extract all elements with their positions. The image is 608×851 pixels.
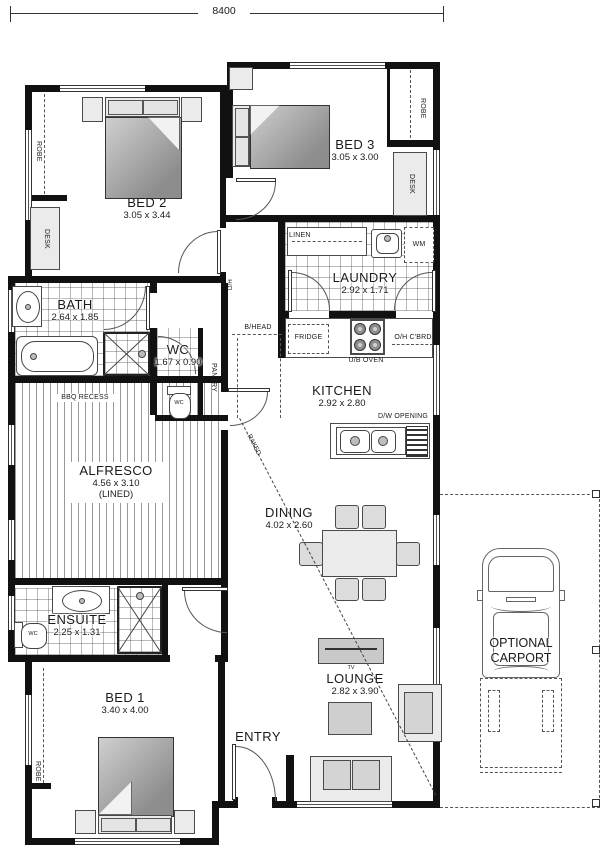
- alfresco-door-arc: [230, 392, 268, 426]
- carport-label-line1: OPTIONAL: [482, 636, 560, 651]
- carport-post-top: [592, 490, 600, 498]
- oh-cupboard-dash: [392, 344, 433, 345]
- ub-oven-label: U/B OVEN: [344, 357, 388, 365]
- hall-dash-left: [237, 338, 238, 418]
- wall-passage-left: [162, 585, 168, 655]
- linen-label: LINEN: [289, 232, 319, 240]
- sofa-cushion-right: [352, 760, 380, 790]
- carport-slab-edge: [480, 772, 562, 773]
- kitchen-name: KITCHEN: [297, 384, 387, 399]
- wall-wc-left: [150, 328, 157, 415]
- window-bed1-bottom: [75, 838, 180, 845]
- window-alfresco-left-a: [8, 425, 15, 465]
- carport-post-bottom: [592, 799, 600, 807]
- laundry-door2-leaf: [432, 270, 436, 312]
- linen-dash: [292, 241, 362, 242]
- bed1-dims: 3.40 x 4.00: [80, 706, 170, 717]
- bulkhead-label: B/HEAD: [234, 324, 282, 332]
- bed2-door-arc: [178, 231, 218, 273]
- window-bed2-top: [60, 85, 145, 92]
- bed2-dims: 3.05 x 3.44: [102, 211, 192, 222]
- wc-pan-label: WC: [169, 400, 189, 406]
- bulkhead-dash: [232, 334, 282, 335]
- sink-drain-left: [350, 436, 360, 446]
- laundry-dims: 2.92 x 1.71: [320, 286, 410, 297]
- ensuite-name: ENSUITE: [32, 613, 122, 628]
- bath-door-leaf: [146, 286, 150, 330]
- bed1-label: BED 1 3.40 x 4.00: [80, 691, 170, 717]
- dining-label: DINING 4.02 x 2.60: [244, 506, 334, 532]
- bed2-side-table-left: [82, 97, 103, 122]
- bed1-door-arc: [184, 591, 227, 633]
- kitchen-label: KITCHEN 2.92 x 2.80: [297, 384, 387, 410]
- wall-bath-top: [8, 276, 225, 283]
- wc-dims: 1.67 x 0.90: [133, 358, 223, 369]
- car-mirror-right: [559, 590, 565, 601]
- alfresco-name: ALFRESCO: [68, 464, 164, 479]
- bed1-side-table-left: [75, 810, 96, 834]
- bed1-side-table-right: [174, 810, 195, 834]
- bed2-desk-label: DESK: [39, 221, 50, 257]
- bed2-pillow-left: [108, 100, 143, 115]
- bed3-robe-label: ROBE: [415, 85, 426, 131]
- raked-label: RAKED: [243, 430, 263, 460]
- cooktop-burner-1: [354, 323, 366, 335]
- tv-screen-line: [325, 648, 377, 650]
- dining-chair-bottom-1: [335, 578, 359, 601]
- bed3-dims: 3.05 x 3.00: [310, 153, 400, 164]
- wall-laundry-bottom-a: [283, 311, 289, 318]
- window-alfresco-left-b: [8, 520, 15, 560]
- dining-chair-top-2: [362, 505, 386, 529]
- bbq-recess-label: BBQ RECESS: [55, 394, 115, 402]
- laundry-label: LAUNDRY 2.92 x 1.71: [320, 271, 410, 297]
- car-windshield: [491, 600, 551, 612]
- bed3-name: BED 3: [310, 138, 400, 153]
- bath-label: BATH 2.64 x 1.85: [30, 298, 120, 324]
- floor-plan: 8400: [0, 0, 608, 851]
- entry-door-arc: [236, 746, 276, 801]
- bed3-label: BED 3 3.05 x 3.00: [310, 138, 400, 164]
- wall-bed3-robe-side: [387, 66, 390, 140]
- kitchen-dims: 2.92 x 2.80: [297, 399, 387, 410]
- wall-bed1-right: [218, 662, 225, 801]
- lounge-name: LOUNGE: [310, 672, 400, 687]
- dining-chair-top-1: [335, 505, 359, 529]
- bed1-robe-rail: [43, 668, 44, 783]
- carport-label: OPTIONAL CARPORT: [482, 636, 560, 666]
- window-lounge-bottom: [297, 801, 392, 808]
- cooktop-burner-3: [354, 339, 366, 351]
- alfresco-note: (LINED): [68, 490, 164, 501]
- carport-post-mid: [592, 646, 600, 654]
- window-dining-right: [433, 515, 440, 565]
- wall-ensuite-bottom: [8, 655, 170, 662]
- carport-label-line2: CARPORT: [482, 651, 560, 666]
- cooktop-burner-2: [369, 323, 381, 335]
- dining-dims: 4.02 x 2.60: [244, 521, 334, 532]
- bed3-pillow-top: [235, 108, 249, 137]
- bed3-desk-label: DESK: [404, 166, 415, 202]
- ensuite-basin-drain: [79, 598, 85, 604]
- window-bed3-top: [290, 62, 385, 69]
- hall-dash-right: [280, 338, 281, 418]
- lounge-dims: 2.82 x 3.90: [310, 687, 400, 698]
- wall-laundry-bottom-b: [329, 311, 396, 318]
- carport-boundary-top: [440, 494, 600, 495]
- carport-footing-left: [488, 690, 500, 732]
- oh-cupboard-label: O/H C'BRD: [390, 334, 436, 342]
- dimension-tick-right: [443, 6, 444, 22]
- tv-unit: [318, 638, 384, 664]
- wall-alfresco-top: [8, 376, 228, 383]
- bed3-pillow-bottom: [235, 137, 249, 166]
- alfresco-label: ALFRESCO 4.56 x 3.10 (LINED): [68, 462, 164, 503]
- bed1-robe-label: ROBE: [30, 748, 41, 794]
- wall-entry-nib: [286, 755, 294, 801]
- car-mirror-left: [477, 590, 483, 601]
- sofa-cushion-left: [323, 760, 351, 790]
- dimension-label: 8400: [198, 5, 250, 17]
- dining-table: [322, 530, 397, 577]
- car-rear-window: [493, 666, 549, 677]
- wc-name: WC: [133, 343, 223, 358]
- sink-drain-right: [378, 436, 388, 446]
- bathtub-drain: [30, 353, 37, 360]
- dining-chair-right: [396, 542, 420, 566]
- washing-machine-label: WM: [404, 241, 434, 249]
- cooktop-burner-4: [369, 339, 381, 351]
- car-bonnet-line: [488, 556, 554, 592]
- carport-footing-right: [542, 690, 554, 732]
- lounge-label: LOUNGE 2.82 x 3.90: [310, 672, 400, 698]
- coffee-table: [328, 702, 372, 735]
- fridge-label: FRIDGE: [288, 334, 329, 342]
- dining-chair-bottom-2: [362, 578, 386, 601]
- entry-label: ENTRY: [230, 730, 286, 745]
- dishwasher-space: [406, 426, 428, 457]
- bath-name: BATH: [30, 298, 120, 313]
- bed1-pillow-right: [136, 818, 171, 832]
- bath-dims: 2.64 x 1.85: [30, 313, 120, 324]
- carport-boundary-bottom: [440, 807, 600, 808]
- wall-bath-shower-stub: [150, 283, 157, 293]
- bed3-side-table: [229, 67, 253, 90]
- wall-laundry-top: [221, 215, 440, 222]
- bed2-robe-label: ROBE: [31, 128, 42, 174]
- wc-room-label: WC 1.67 x 0.90: [133, 343, 223, 369]
- wall-alfresco-right-stub: [221, 383, 228, 392]
- bed2-name: BED 2: [102, 196, 192, 211]
- wall-pantry-bottom: [203, 415, 228, 421]
- window-bed3-right: [433, 150, 440, 215]
- bed2-side-table-right: [181, 97, 202, 122]
- window-kitchen-right: [433, 345, 440, 415]
- wall-step: [212, 801, 219, 845]
- bed3-robe-rail: [410, 70, 411, 138]
- bed1-name: BED 1: [80, 691, 170, 706]
- bed1-pillow-left: [101, 818, 136, 832]
- ensuite-shower-head: [136, 592, 144, 600]
- wall-alfresco-bottom: [8, 578, 228, 585]
- dw-opening-label: D/W OPENING: [374, 413, 432, 421]
- wall-alfresco-right: [221, 430, 228, 585]
- wall-wc-pantry: [198, 328, 203, 420]
- laundry-name: LAUNDRY: [320, 271, 410, 286]
- laundry-tap: [384, 235, 391, 242]
- door-head-label: D/H: [228, 273, 238, 297]
- armchair-cushion: [404, 692, 433, 734]
- bed2-pillow-right: [143, 100, 178, 115]
- bed2-label: BED 2 3.05 x 3.44: [102, 196, 192, 222]
- ensuite-dims: 2.25 x 1.31: [32, 628, 122, 639]
- bed2-robe-rail: [44, 94, 45, 194]
- ensuite-label: ENSUITE 2.25 x 1.31: [32, 613, 122, 639]
- dimension-tick-left: [10, 6, 11, 22]
